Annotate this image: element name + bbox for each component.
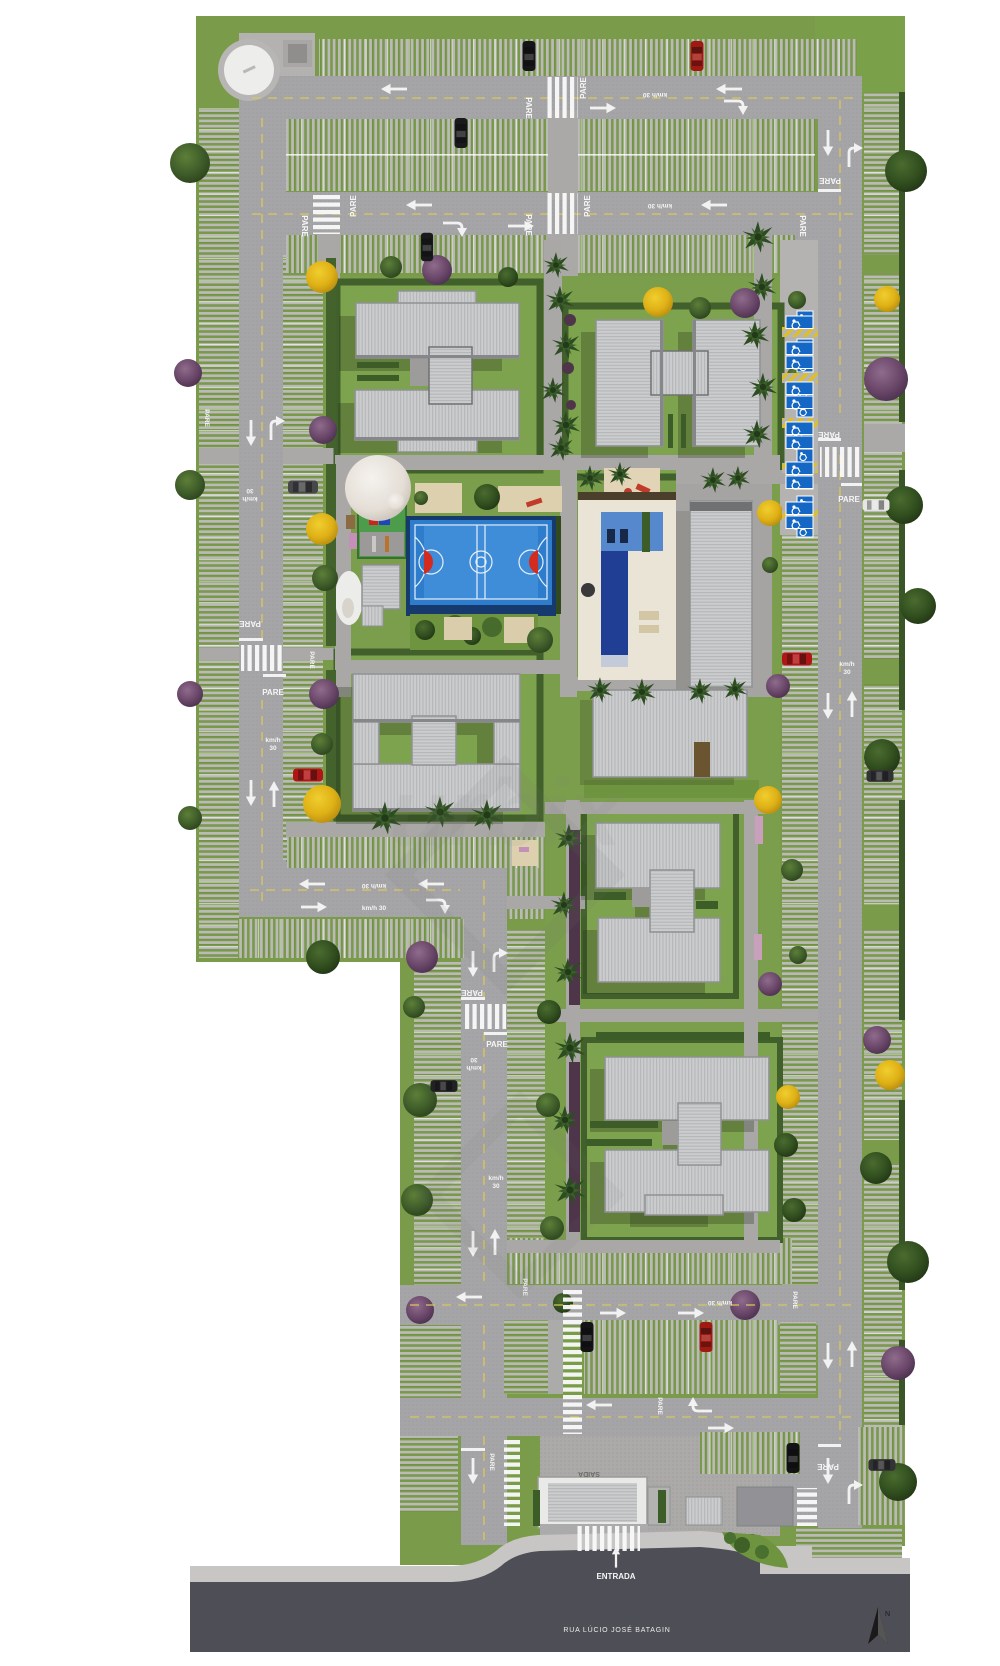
- svg-text:PARE: PARE: [349, 195, 358, 217]
- svg-text:PARE: PARE: [818, 430, 840, 439]
- svg-text:PARE: PARE: [524, 97, 533, 119]
- svg-text:30: 30: [492, 1183, 500, 1190]
- svg-text:km/h: km/h: [466, 1064, 481, 1071]
- svg-text:PARE: PARE: [239, 619, 261, 628]
- svg-text:PARE: PARE: [461, 988, 483, 997]
- svg-text:30: 30: [843, 669, 851, 676]
- svg-text:PARE: PARE: [819, 176, 841, 185]
- svg-text:SAIDA: SAIDA: [578, 1470, 600, 1477]
- svg-text:km/h: km/h: [265, 737, 280, 744]
- svg-text:km/h 30: km/h 30: [643, 91, 668, 98]
- svg-text:km/h: km/h: [488, 1175, 503, 1182]
- svg-text:km/h 30: km/h 30: [708, 1299, 733, 1306]
- svg-text:30: 30: [269, 745, 277, 752]
- svg-text:urbix: urbix: [389, 760, 625, 866]
- svg-text:PARE: PARE: [203, 409, 210, 427]
- svg-text:PARE: PARE: [262, 688, 284, 697]
- svg-text:PARE: PARE: [791, 1291, 798, 1309]
- svg-text:30: 30: [246, 487, 254, 494]
- svg-text:PARE: PARE: [308, 651, 315, 669]
- svg-text:PARE: PARE: [486, 1040, 508, 1049]
- svg-text:PARE: PARE: [583, 195, 592, 217]
- svg-text:km/h 30: km/h 30: [362, 905, 387, 912]
- svg-text:ENTRADA: ENTRADA: [596, 1572, 635, 1581]
- svg-text:PARE: PARE: [838, 495, 860, 504]
- svg-text:PARE: PARE: [524, 214, 533, 236]
- svg-text:km/h 30: km/h 30: [648, 202, 673, 209]
- svg-text:PARE: PARE: [817, 1462, 839, 1471]
- svg-text:PARE: PARE: [579, 77, 588, 99]
- svg-text:PARE: PARE: [656, 1397, 663, 1415]
- svg-text:PARE: PARE: [488, 1453, 495, 1471]
- svg-text:30: 30: [470, 1056, 478, 1063]
- svg-text:km/h: km/h: [242, 495, 257, 502]
- svg-text:km/h 30: km/h 30: [362, 882, 387, 889]
- svg-text:PARE: PARE: [798, 215, 807, 237]
- svg-text:N: N: [885, 1611, 890, 1618]
- svg-text:km/h: km/h: [839, 661, 854, 668]
- svg-text:RUA LÚCIO JOSÉ BATAGIN: RUA LÚCIO JOSÉ BATAGIN: [563, 1625, 670, 1634]
- svg-text:PARE: PARE: [300, 215, 309, 237]
